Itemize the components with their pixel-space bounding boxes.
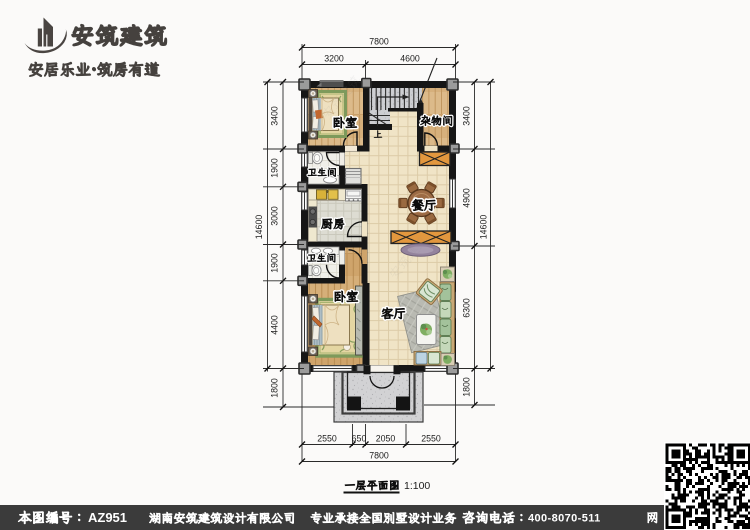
svg-text:3400: 3400 bbox=[462, 106, 472, 126]
svg-text:1900: 1900 bbox=[270, 158, 280, 178]
svg-text:2550: 2550 bbox=[421, 434, 441, 444]
svg-text:4900: 4900 bbox=[462, 188, 472, 208]
svg-text:3400: 3400 bbox=[270, 106, 280, 126]
svg-text:14600: 14600 bbox=[254, 215, 264, 240]
svg-text:1900: 1900 bbox=[270, 253, 280, 273]
svg-text:1800: 1800 bbox=[462, 377, 472, 397]
svg-text:7800: 7800 bbox=[369, 451, 389, 461]
svg-text:1800: 1800 bbox=[270, 378, 280, 398]
svg-text:7800: 7800 bbox=[369, 37, 389, 47]
svg-text:6300: 6300 bbox=[462, 298, 472, 318]
svg-text:400-8070-511: 400-8070-511 bbox=[528, 513, 601, 525]
svg-text:4600: 4600 bbox=[400, 54, 420, 64]
svg-text:AZ951: AZ951 bbox=[88, 510, 127, 525]
svg-text:1:100: 1:100 bbox=[404, 480, 430, 492]
svg-text:3200: 3200 bbox=[324, 54, 344, 64]
svg-text:14600: 14600 bbox=[479, 215, 489, 240]
svg-text:4400: 4400 bbox=[270, 315, 280, 335]
svg-text:3000: 3000 bbox=[270, 206, 280, 226]
svg-text:2050: 2050 bbox=[376, 434, 396, 444]
svg-text:2550: 2550 bbox=[317, 434, 337, 444]
svg-text:650: 650 bbox=[352, 434, 367, 444]
